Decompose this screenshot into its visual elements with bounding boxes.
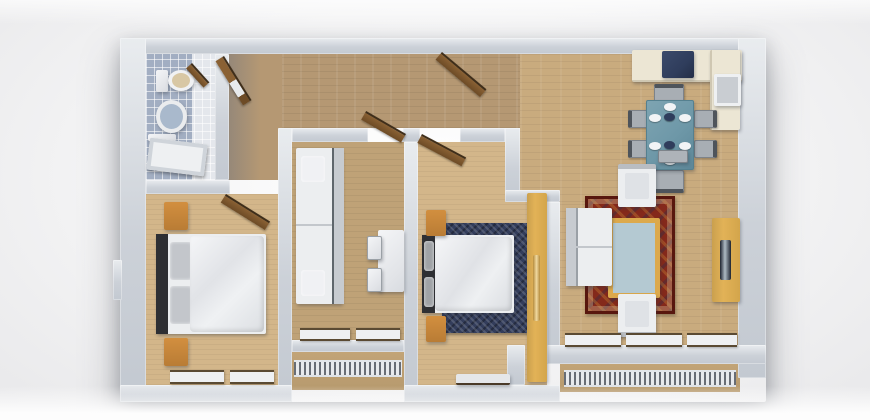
lounge-sofa-pillow-1 [301, 156, 325, 182]
lounge-window-2 [356, 328, 400, 341]
bathtub [146, 138, 207, 177]
apartment [120, 38, 766, 402]
lounge-sofa-split [296, 224, 332, 226]
living-window-1 [565, 333, 621, 347]
bench [456, 374, 510, 385]
bed-left-duvet [190, 236, 264, 332]
tv-screen [720, 240, 731, 280]
wall-lounge-bottom [292, 340, 404, 352]
wash-basin [156, 100, 187, 133]
lounge-sofa-back [332, 148, 344, 304]
desk-chair-1 [367, 236, 382, 260]
bed-left-pillow-1 [170, 242, 192, 280]
bedroom-left-window-1 [170, 370, 224, 384]
wall-bedroom-left-bottom [120, 385, 292, 402]
living-window-3 [687, 333, 737, 347]
bed-right-duvet [435, 237, 512, 311]
hallway-floor-nook [228, 54, 282, 180]
bed-left [156, 234, 266, 334]
toilet-seat [172, 73, 190, 88]
balcony-right-railing [564, 370, 736, 387]
plate-top [664, 103, 676, 111]
lounge-sofa [296, 148, 342, 304]
lounge-window-1 [300, 328, 350, 341]
plate-ll [649, 142, 661, 150]
armchair-bottom [618, 294, 656, 337]
nightstand-left-top [164, 202, 188, 230]
toilet-tank [156, 70, 168, 92]
bed-right-pillow-1 [424, 241, 434, 271]
nightstand-left-bottom [164, 338, 188, 366]
wall-right [738, 38, 766, 378]
armchair-top [618, 164, 656, 207]
wardrobe-handle-groove [533, 255, 540, 321]
wardrobe [527, 193, 547, 382]
wall-left [120, 38, 146, 402]
bedroom-left-window-2 [230, 370, 274, 384]
bowl-lower [664, 141, 675, 149]
plate-ul [649, 114, 661, 122]
armchair-bottom-seat [625, 301, 649, 327]
living-window-2 [626, 333, 682, 347]
bowl-upper [664, 113, 675, 121]
wall-left-bump [113, 260, 122, 300]
bed-right [422, 235, 514, 313]
wall-bedrooms-divider-1 [278, 128, 292, 402]
wall-bedroom-left-top [146, 180, 230, 194]
floor-plan-scene [0, 0, 870, 420]
bed-left-headboard [156, 234, 168, 334]
bed-left-pillow-2 [170, 286, 192, 324]
wall-shelf [658, 150, 688, 163]
cooktop [662, 51, 694, 78]
tv-console [712, 218, 740, 302]
wall-hall-a [292, 128, 368, 142]
lounge-sofa-pillow-2 [301, 270, 325, 296]
wall-hall-c [460, 128, 505, 142]
wall-bedrooms-divider-2 [404, 142, 418, 402]
living-sofa [566, 208, 612, 286]
plate-lr [679, 142, 691, 150]
bed-right-pillow-2 [424, 277, 434, 307]
wall-living-left [547, 202, 560, 364]
wall-living-bottom [547, 345, 766, 364]
nightstand-right-bottom [426, 316, 446, 342]
dining-chair-right-1 [694, 110, 717, 128]
dining-chair-right-2 [694, 140, 717, 158]
armchair-top-seat [625, 173, 649, 199]
balcony-left-railing [294, 360, 402, 377]
desk-chair-2 [367, 268, 382, 292]
coffee-table [608, 218, 660, 298]
top-fade [0, 0, 870, 24]
living-sofa-split [576, 246, 612, 248]
plate-ur [679, 114, 691, 122]
dining-chair-bottom [654, 170, 684, 193]
wall-bedroom-right-bottom [404, 385, 560, 402]
nightstand-right-top [426, 210, 446, 236]
kitchen-sink [714, 74, 741, 106]
